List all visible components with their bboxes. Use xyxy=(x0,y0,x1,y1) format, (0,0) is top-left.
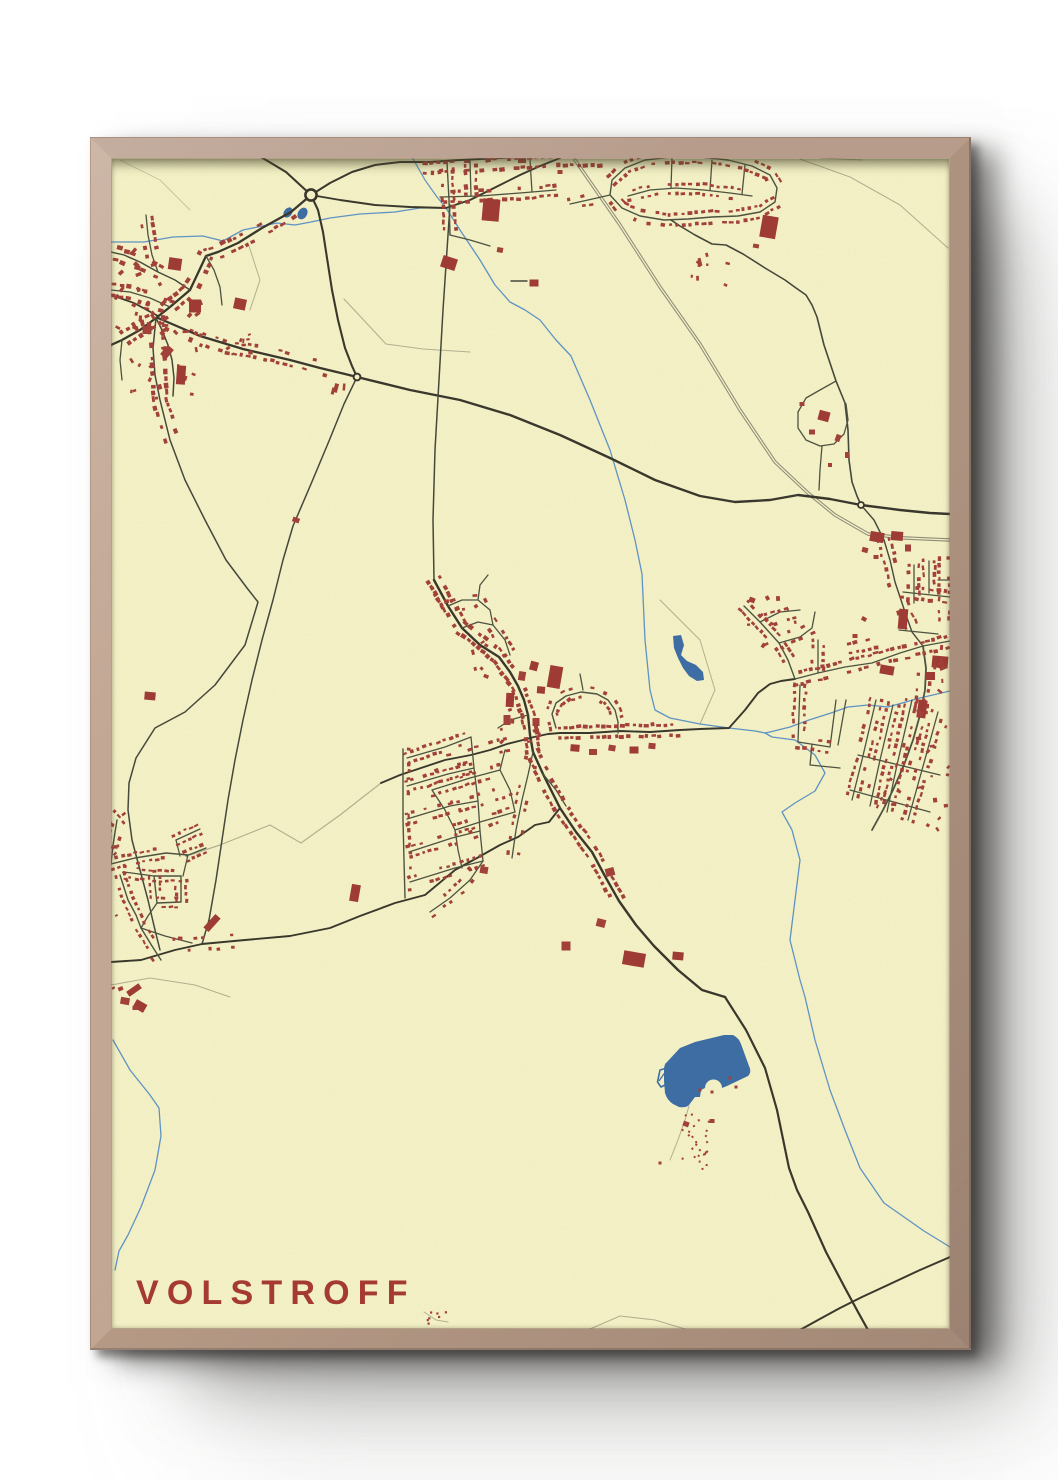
svg-text:VOLSTROFF: VOLSTROFF xyxy=(136,1274,416,1312)
